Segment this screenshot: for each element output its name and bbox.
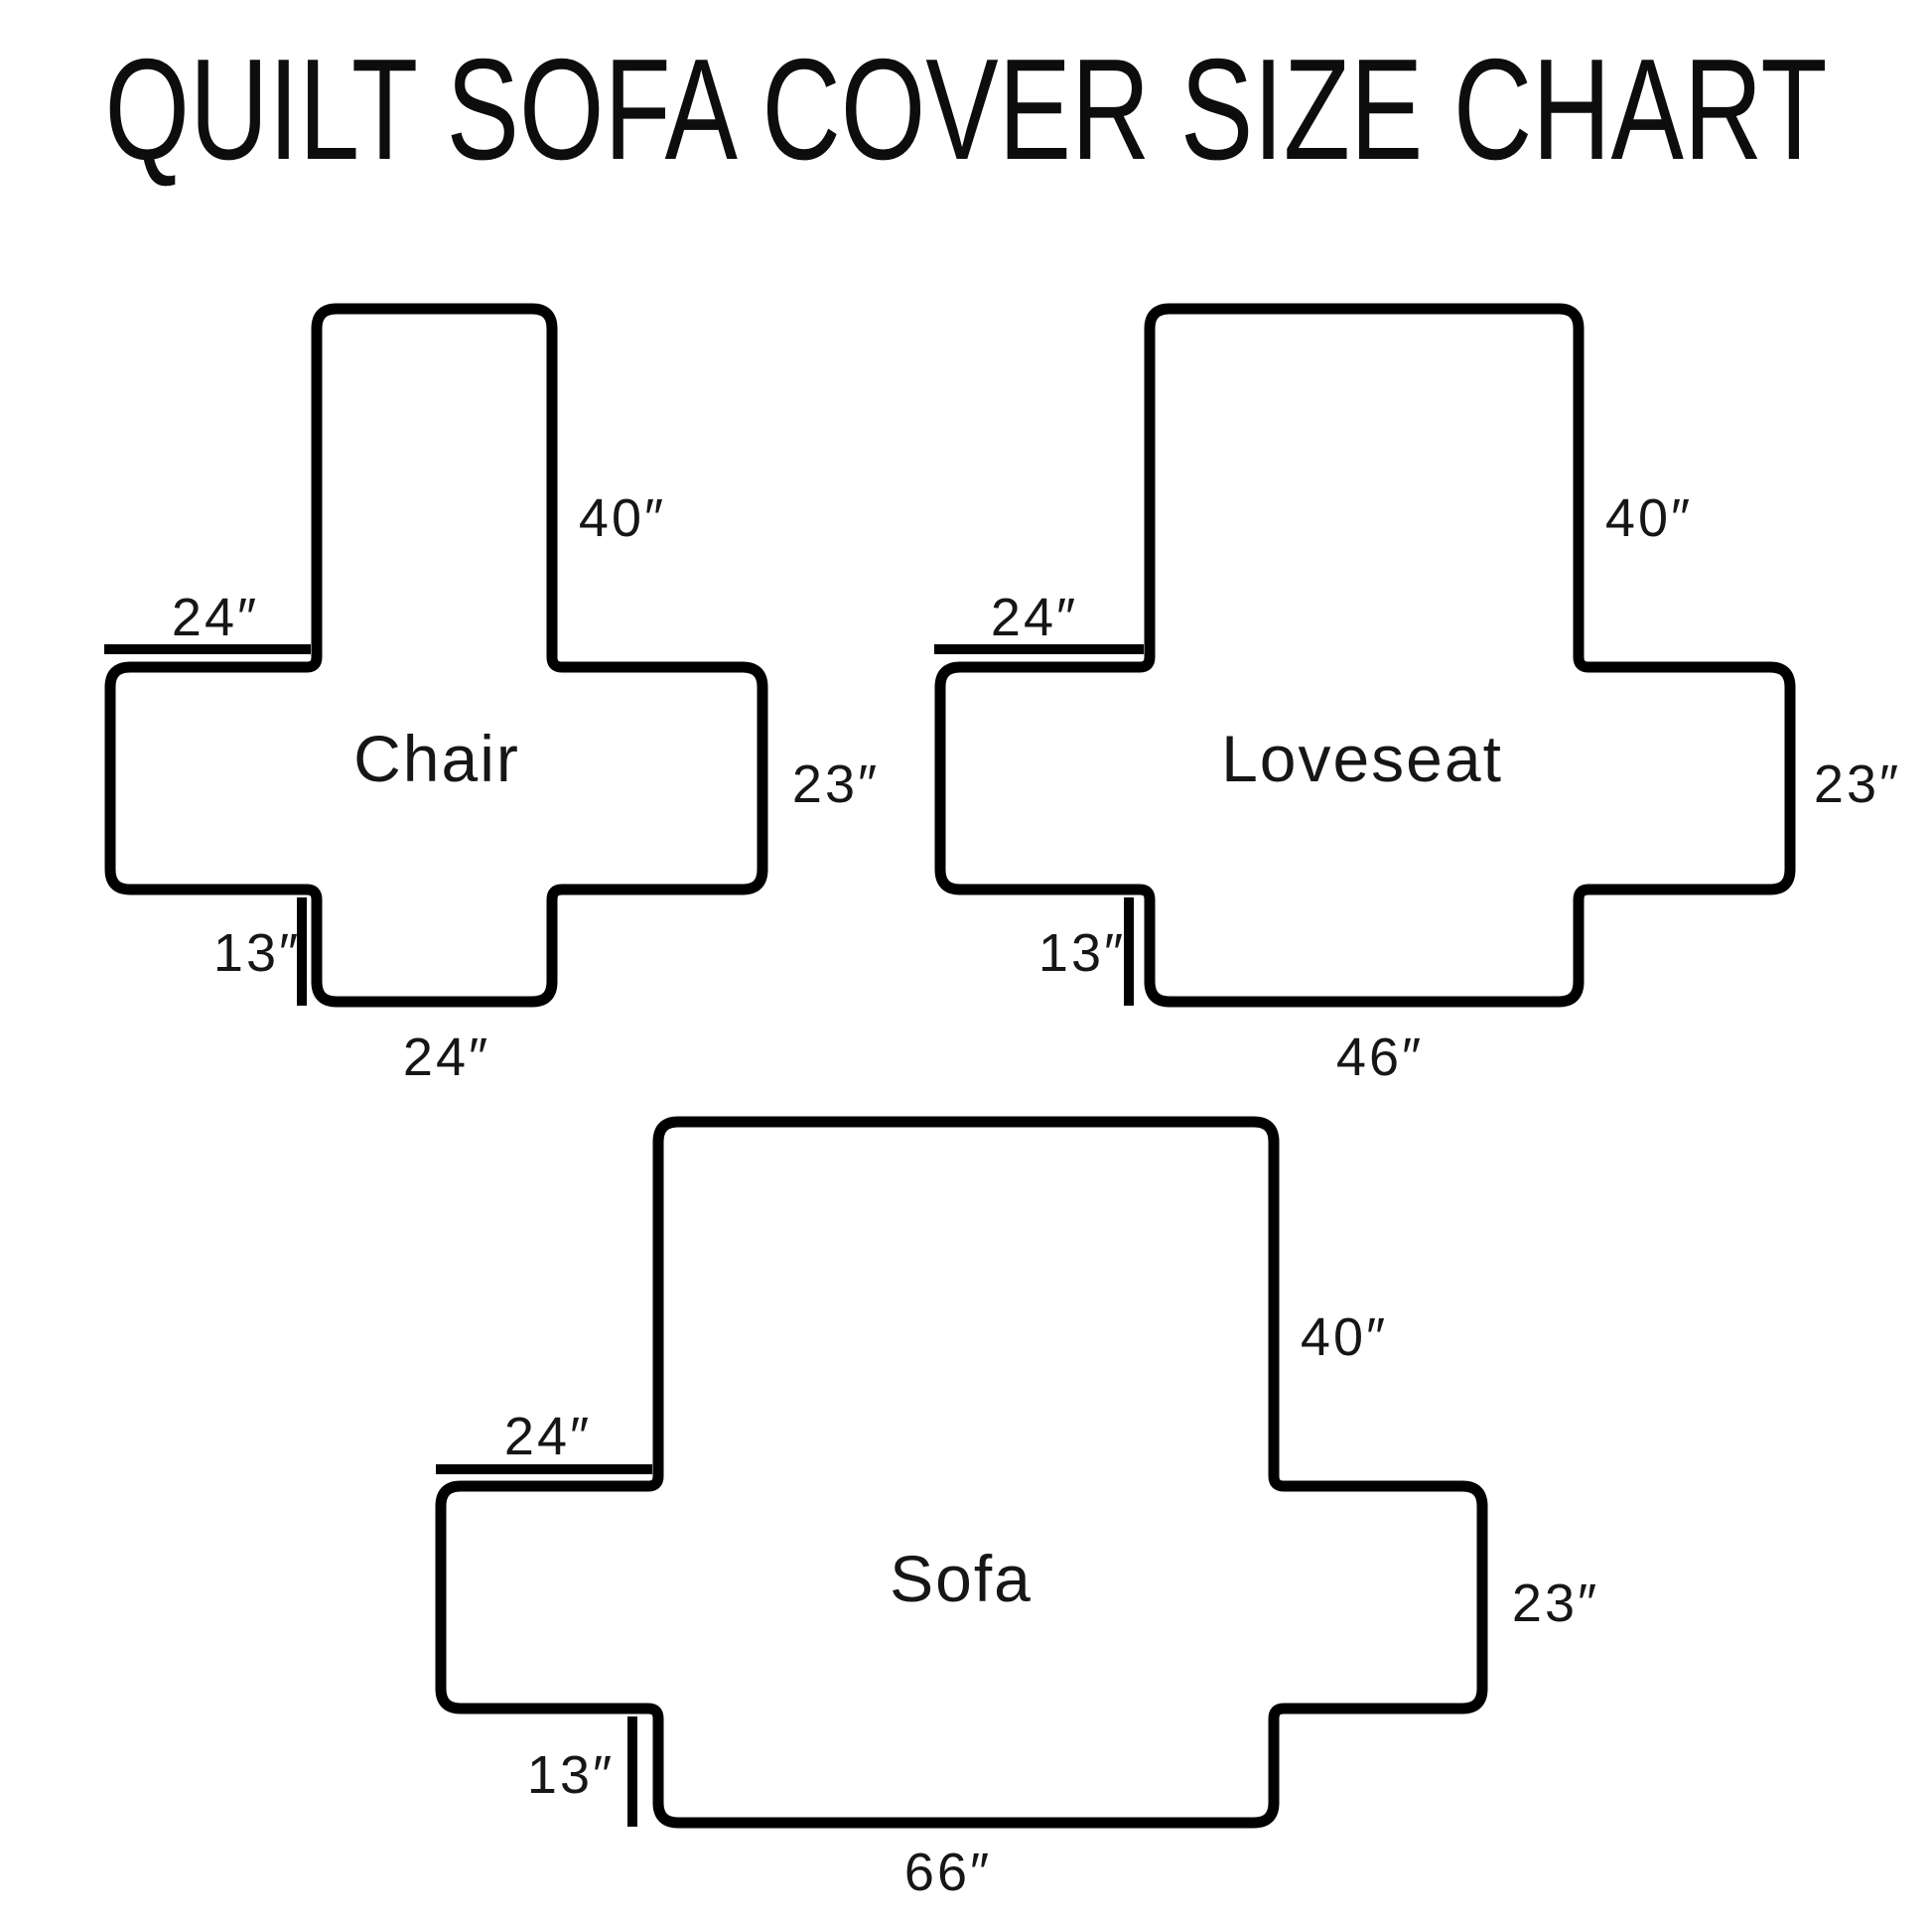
loveseat-flap-height-label: 13″ bbox=[1038, 923, 1126, 983]
sofa-arm-depth-label: 24″ bbox=[504, 1407, 592, 1466]
chair-name-label: Chair bbox=[353, 722, 520, 795]
chair-flap-height-label: 13″ bbox=[213, 923, 301, 983]
sofa-flap-height-label: 13″ bbox=[527, 1745, 615, 1805]
loveseat-name-label: Loveseat bbox=[1221, 722, 1503, 795]
size-chart-page: QUILT SOFA COVER SIZE CHART Chair 40″ 24… bbox=[0, 0, 1932, 1918]
page-title: QUILT SOFA COVER SIZE CHART bbox=[105, 29, 1828, 190]
size-chart-canvas: QUILT SOFA COVER SIZE CHART Chair 40″ 24… bbox=[0, 0, 1932, 1918]
chair-bottom-width-label: 24″ bbox=[403, 1027, 490, 1087]
loveseat-bottom-width-label: 46″ bbox=[1336, 1027, 1424, 1087]
chair-arm-depth-label: 24″ bbox=[172, 588, 259, 647]
chair-outline bbox=[110, 309, 762, 1002]
chair-arm-height-label: 23″ bbox=[792, 754, 880, 814]
loveseat-outline bbox=[940, 309, 1790, 1002]
sofa-back-height-label: 40″ bbox=[1301, 1307, 1388, 1367]
chair-back-height-label: 40″ bbox=[579, 488, 666, 548]
loveseat-arm-height-label: 23″ bbox=[1814, 754, 1901, 814]
sofa-arm-height-label: 23″ bbox=[1512, 1574, 1599, 1633]
loveseat-back-height-label: 40″ bbox=[1605, 488, 1693, 548]
loveseat-arm-depth-label: 24″ bbox=[991, 588, 1078, 647]
sofa-name-label: Sofa bbox=[890, 1542, 1033, 1615]
sofa-bottom-width-label: 66″ bbox=[904, 1843, 992, 1902]
